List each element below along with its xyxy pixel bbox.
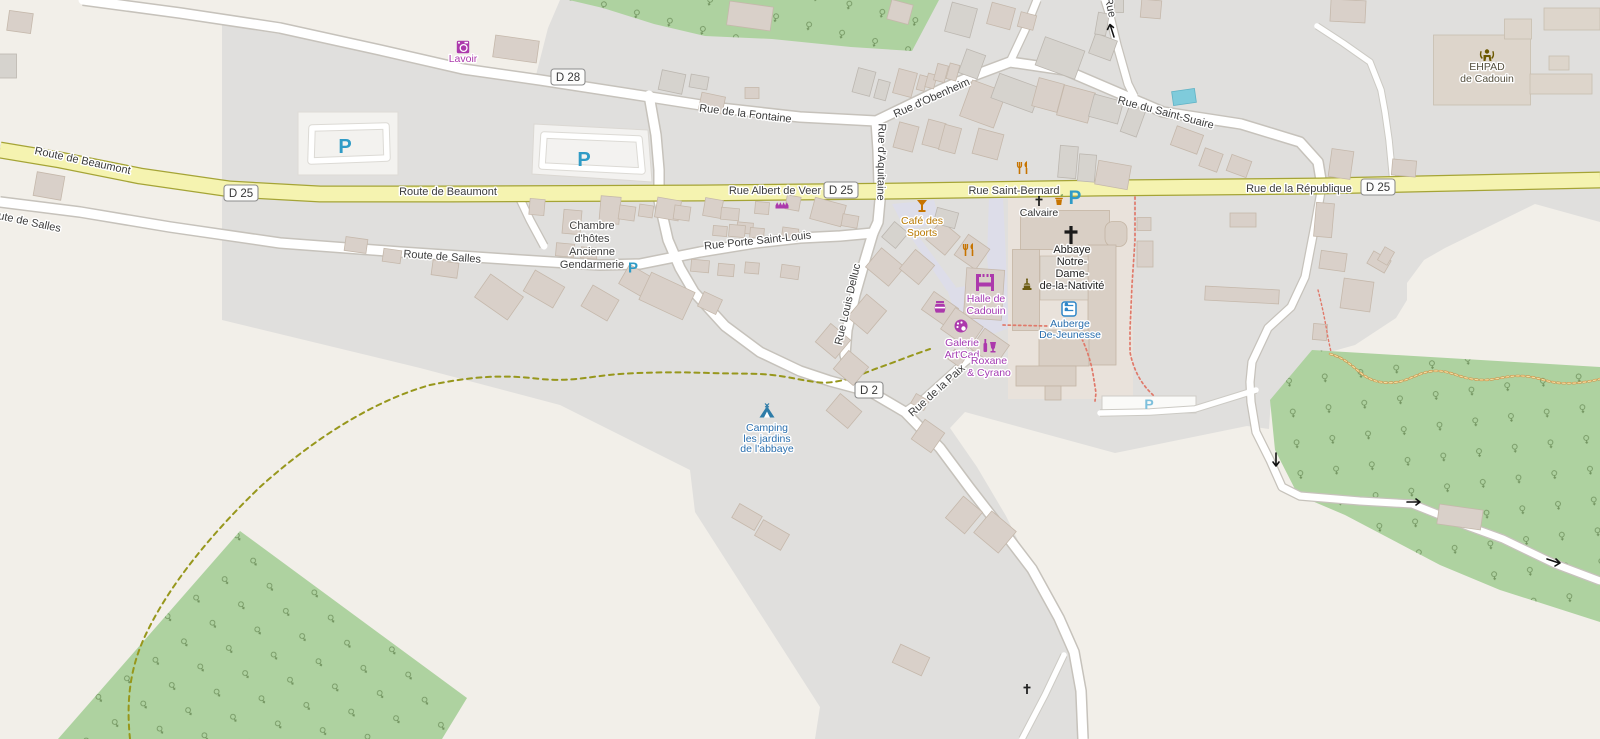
svg-text:Abbaye: Abbaye — [1053, 244, 1090, 256]
svg-text:P: P — [338, 136, 351, 158]
svg-text:Cadouin: Cadouin — [966, 305, 1005, 317]
svg-text:de-la-Nativité: de-la-Nativité — [1040, 280, 1105, 292]
svg-text:Dame-: Dame- — [1055, 268, 1088, 280]
svg-text:P: P — [1144, 396, 1153, 412]
svg-text:P: P — [628, 259, 638, 276]
svg-text:Café des: Café des — [901, 215, 943, 227]
svg-text:d'hôtes: d'hôtes — [574, 233, 610, 245]
svg-text:D 25: D 25 — [229, 188, 253, 200]
svg-text:Rue de la République: Rue de la République — [1246, 183, 1352, 195]
svg-text:Lavoir: Lavoir — [449, 53, 478, 65]
svg-text:Galerie: Galerie — [945, 337, 979, 349]
svg-text:D 2: D 2 — [860, 385, 878, 397]
svg-text:Notre-: Notre- — [1057, 256, 1088, 268]
svg-text:P: P — [1069, 188, 1082, 209]
svg-text:Chambre: Chambre — [569, 220, 614, 232]
svg-text:& Cyrano: & Cyrano — [967, 367, 1011, 379]
svg-text:de Cadouin: de Cadouin — [1460, 73, 1514, 85]
svg-text:D 28: D 28 — [556, 72, 580, 84]
svg-text:Ancienne: Ancienne — [569, 246, 615, 258]
svg-text:EHPAD: EHPAD — [1469, 61, 1505, 73]
svg-text:Route de Beaumont: Route de Beaumont — [399, 186, 497, 198]
svg-text:Calvaire: Calvaire — [1020, 207, 1059, 219]
svg-text:Roxane: Roxane — [971, 355, 1007, 367]
svg-text:Rue Albert de Veer: Rue Albert de Veer — [729, 185, 822, 197]
svg-text:Halle de: Halle de — [967, 293, 1006, 305]
svg-text:Gendarmerie: Gendarmerie — [560, 259, 624, 271]
svg-text:Rue d'Aquitaine: Rue d'Aquitaine — [874, 123, 887, 201]
svg-text:Sports: Sports — [907, 227, 937, 239]
svg-text:Rue Saint-Bernard: Rue Saint-Bernard — [968, 185, 1059, 197]
svg-text:P: P — [577, 149, 590, 171]
svg-text:D 25: D 25 — [829, 185, 853, 197]
svg-text:de l'abbaye: de l'abbaye — [740, 443, 794, 455]
svg-text:De-Jeunesse: De-Jeunesse — [1039, 329, 1101, 341]
svg-text:D 25: D 25 — [1366, 182, 1390, 194]
